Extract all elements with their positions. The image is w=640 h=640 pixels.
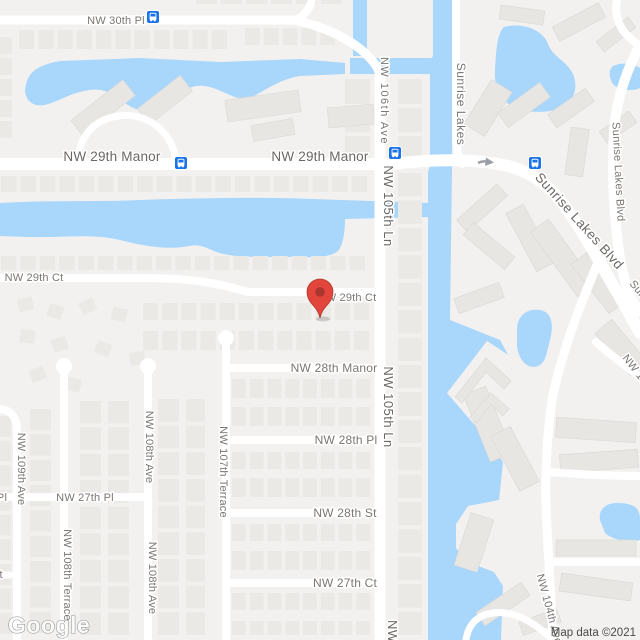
- house: [268, 452, 282, 469]
- house: [0, 58, 12, 75]
- house: [356, 452, 370, 469]
- house: [258, 303, 273, 320]
- house: [157, 176, 173, 192]
- house: [277, 303, 292, 320]
- house: [30, 460, 51, 481]
- house: [173, 30, 188, 49]
- house: [196, 0, 217, 4]
- house: [339, 407, 353, 426]
- condo-building: [556, 540, 636, 556]
- house: [181, 331, 196, 350]
- house: [339, 524, 353, 541]
- house: [250, 621, 264, 635]
- house: [212, 30, 227, 49]
- house: [239, 331, 254, 350]
- house: [186, 586, 205, 609]
- house: [321, 593, 335, 610]
- street-label: NW 106th Ave: [378, 57, 390, 145]
- house: [345, 79, 370, 104]
- street-label: Pl: [0, 492, 7, 504]
- house: [201, 303, 216, 320]
- house: [193, 30, 208, 49]
- house: [356, 551, 370, 570]
- house: [232, 379, 246, 398]
- house: [186, 399, 205, 422]
- cul-de-sac: [140, 358, 156, 374]
- house: [186, 479, 205, 502]
- house: [239, 303, 254, 320]
- cul-de-sac: [218, 330, 234, 346]
- house: [283, 28, 298, 45]
- house: [303, 452, 317, 469]
- house: [0, 441, 11, 462]
- house: [19, 30, 34, 49]
- house: [303, 524, 317, 541]
- house: [285, 452, 299, 469]
- house: [268, 551, 282, 570]
- house: [108, 586, 129, 608]
- house: [0, 121, 12, 138]
- house: [186, 559, 205, 582]
- house: [158, 426, 179, 449]
- house: [80, 454, 101, 476]
- house: [339, 379, 353, 398]
- house: [321, 407, 335, 426]
- street-label: NW 29th Manor: [63, 149, 160, 164]
- house: [186, 612, 205, 635]
- house: [254, 176, 270, 192]
- house: [158, 612, 179, 635]
- house: [143, 303, 158, 320]
- house: [311, 256, 326, 270]
- house: [40, 256, 55, 270]
- house: [158, 479, 179, 502]
- house: [285, 621, 299, 635]
- house: [321, 478, 335, 497]
- house: [356, 379, 370, 398]
- house: [285, 524, 299, 541]
- house: [292, 256, 307, 270]
- house: [215, 176, 231, 192]
- house: [303, 621, 317, 635]
- house: [30, 409, 51, 430]
- house: [98, 176, 114, 192]
- house: [398, 338, 422, 361]
- house: [79, 176, 95, 192]
- house: [264, 28, 279, 45]
- house: [156, 256, 171, 270]
- house: [321, 524, 335, 541]
- house: [321, 0, 342, 4]
- house: [245, 28, 260, 45]
- street-label: NW 105th Ln: [381, 165, 396, 246]
- house: [186, 426, 205, 449]
- map-canvas[interactable]: NW 30th PlNW 29th ManorNW 29th ManorNW 1…: [0, 0, 640, 640]
- house: [1, 176, 17, 192]
- bus-stop-icon[interactable]: [147, 11, 160, 24]
- house: [268, 379, 282, 398]
- house: [356, 593, 370, 610]
- house: [356, 621, 370, 635]
- house: [96, 30, 111, 49]
- map-svg[interactable]: NW 30th PlNW 29th ManorNW 29th ManorNW 1…: [0, 0, 640, 640]
- house: [271, 0, 292, 4]
- house: [77, 30, 92, 49]
- house: [339, 478, 353, 497]
- street-label: NW 105th Ln: [385, 620, 400, 640]
- house: [40, 176, 56, 192]
- house: [246, 0, 267, 4]
- house: [398, 557, 422, 580]
- house: [232, 524, 246, 541]
- cul-de-sac: [56, 358, 72, 374]
- house: [285, 551, 299, 570]
- house: [285, 478, 299, 497]
- house: [30, 536, 51, 557]
- house: [398, 108, 422, 133]
- house: [186, 506, 205, 529]
- house: [250, 478, 264, 497]
- bus-stop-icon[interactable]: [529, 157, 542, 170]
- house: [59, 176, 75, 192]
- house: [108, 533, 129, 555]
- house: [356, 524, 370, 541]
- road: [548, 472, 640, 476]
- house: [58, 30, 73, 49]
- house: [158, 559, 179, 582]
- house: [162, 303, 177, 320]
- house: [339, 452, 353, 469]
- house: [268, 593, 282, 610]
- house: [398, 228, 422, 251]
- house: [115, 30, 130, 49]
- house: [98, 256, 113, 270]
- house: [268, 407, 282, 426]
- house: [0, 37, 12, 54]
- house: [158, 399, 179, 422]
- house: [181, 303, 196, 320]
- house: [232, 407, 246, 426]
- house: [330, 256, 345, 270]
- house: [186, 532, 205, 555]
- house: [335, 303, 350, 320]
- house: [30, 586, 51, 607]
- house: [398, 79, 422, 104]
- house: [398, 502, 422, 525]
- house: [303, 379, 317, 398]
- street-label: NW 29th Ct: [5, 272, 64, 284]
- house: [398, 173, 422, 196]
- house: [303, 407, 317, 426]
- house: [137, 176, 153, 192]
- street-label: NW 30th Pl: [87, 15, 145, 27]
- house: [108, 507, 129, 529]
- house: [135, 30, 150, 49]
- house: [321, 379, 335, 398]
- house: [301, 28, 316, 45]
- house: [250, 524, 264, 541]
- house: [321, 621, 335, 635]
- house: [250, 452, 264, 469]
- house: [321, 551, 335, 570]
- house: [0, 416, 11, 437]
- house: [80, 586, 101, 608]
- house: [38, 30, 53, 49]
- house: [0, 465, 11, 486]
- house: [398, 392, 422, 415]
- house: [79, 256, 94, 270]
- house: [30, 561, 51, 582]
- house: [398, 200, 422, 223]
- house: [80, 401, 101, 423]
- house: [108, 454, 129, 476]
- house: [80, 507, 101, 529]
- house: [80, 427, 101, 449]
- house: [232, 452, 246, 469]
- house: [158, 532, 179, 555]
- house: [354, 303, 369, 320]
- house: [232, 551, 246, 570]
- house: [1, 256, 16, 270]
- house: [250, 407, 264, 426]
- house: [332, 176, 348, 192]
- house: [296, 303, 311, 320]
- house: [274, 176, 290, 192]
- house: [232, 478, 246, 497]
- house: [253, 256, 268, 270]
- house: [398, 420, 422, 443]
- house: [335, 331, 350, 350]
- street-label: NW 27th Pl: [56, 492, 114, 504]
- rowhouse-block: [327, 104, 375, 128]
- house: [398, 529, 422, 552]
- house: [0, 100, 12, 117]
- house: [398, 283, 422, 306]
- house: [277, 331, 292, 350]
- house: [313, 176, 329, 192]
- house: [176, 176, 192, 192]
- house: [80, 533, 101, 555]
- house: [250, 593, 264, 610]
- house: [398, 612, 422, 635]
- house: [268, 621, 282, 635]
- street-label: NW 28th Pl: [315, 433, 378, 447]
- house: [158, 452, 179, 475]
- house: [162, 331, 177, 350]
- house: [303, 593, 317, 610]
- house: [232, 621, 246, 635]
- house: [108, 560, 129, 582]
- house: [354, 331, 369, 350]
- house: [186, 452, 205, 475]
- house: [296, 331, 311, 350]
- house: [195, 256, 210, 270]
- house: [117, 256, 132, 270]
- house: [19, 329, 36, 344]
- street-label: NW 29th Manor: [271, 149, 368, 164]
- house: [175, 256, 190, 270]
- house: [321, 452, 335, 469]
- house: [30, 510, 51, 531]
- house: [108, 401, 129, 423]
- street-label: Ct: [0, 569, 3, 581]
- house: [303, 478, 317, 497]
- house: [285, 379, 299, 398]
- house: [80, 560, 101, 582]
- street-label: Sunrise Lakes: [454, 63, 468, 146]
- house: [118, 176, 134, 192]
- house: [398, 365, 422, 388]
- house: [0, 79, 12, 96]
- house: [158, 506, 179, 529]
- house: [154, 30, 169, 49]
- bus-stop-icon[interactable]: [175, 157, 188, 170]
- street-label: NW 28th St: [313, 506, 377, 520]
- house: [285, 593, 299, 610]
- house: [21, 176, 37, 192]
- house: [272, 256, 287, 270]
- house: [352, 176, 368, 192]
- bus-stop-icon[interactable]: [389, 147, 402, 160]
- street-label: NW 28th Manor: [291, 361, 378, 375]
- street-label: NW 109th Ave: [15, 433, 27, 506]
- house: [30, 434, 51, 455]
- house: [293, 176, 309, 192]
- house: [250, 551, 264, 570]
- house: [398, 475, 422, 498]
- house: [398, 255, 422, 278]
- street-label: NW 105th Ln: [381, 366, 396, 447]
- house: [303, 551, 317, 570]
- house: [221, 0, 242, 4]
- house: [20, 256, 35, 270]
- house: [398, 310, 422, 333]
- house: [0, 515, 11, 536]
- street-label: NW 108th Ave: [143, 411, 155, 484]
- house: [285, 407, 299, 426]
- street-label: NW 108th Terrace: [61, 529, 73, 621]
- house: [220, 303, 235, 320]
- house: [214, 256, 229, 270]
- house: [339, 621, 353, 635]
- house: [59, 256, 74, 270]
- house: [398, 447, 422, 470]
- house: [158, 586, 179, 609]
- google-logo[interactable]: Google: [8, 612, 90, 638]
- house: [356, 407, 370, 426]
- street-label: NW 108th Ave: [146, 542, 158, 615]
- house: [137, 256, 152, 270]
- house: [258, 331, 273, 350]
- street-label: NW 27th Ct: [313, 576, 377, 590]
- house: [398, 584, 422, 607]
- house: [339, 593, 353, 610]
- house: [339, 551, 353, 570]
- house: [196, 176, 212, 192]
- house: [316, 331, 331, 350]
- street-label: NW 107th Terrace: [217, 426, 229, 518]
- house: [350, 256, 365, 270]
- house: [268, 478, 282, 497]
- house: [235, 176, 251, 192]
- house: [0, 589, 11, 610]
- house: [233, 256, 248, 270]
- house: [268, 524, 282, 541]
- house: [108, 427, 129, 449]
- house: [232, 593, 246, 610]
- house: [108, 613, 129, 635]
- house: [201, 331, 216, 350]
- copyright-text: Map data ©2021: [551, 627, 636, 639]
- house: [250, 379, 264, 398]
- house: [143, 331, 158, 350]
- house: [0, 539, 11, 560]
- house: [356, 478, 370, 497]
